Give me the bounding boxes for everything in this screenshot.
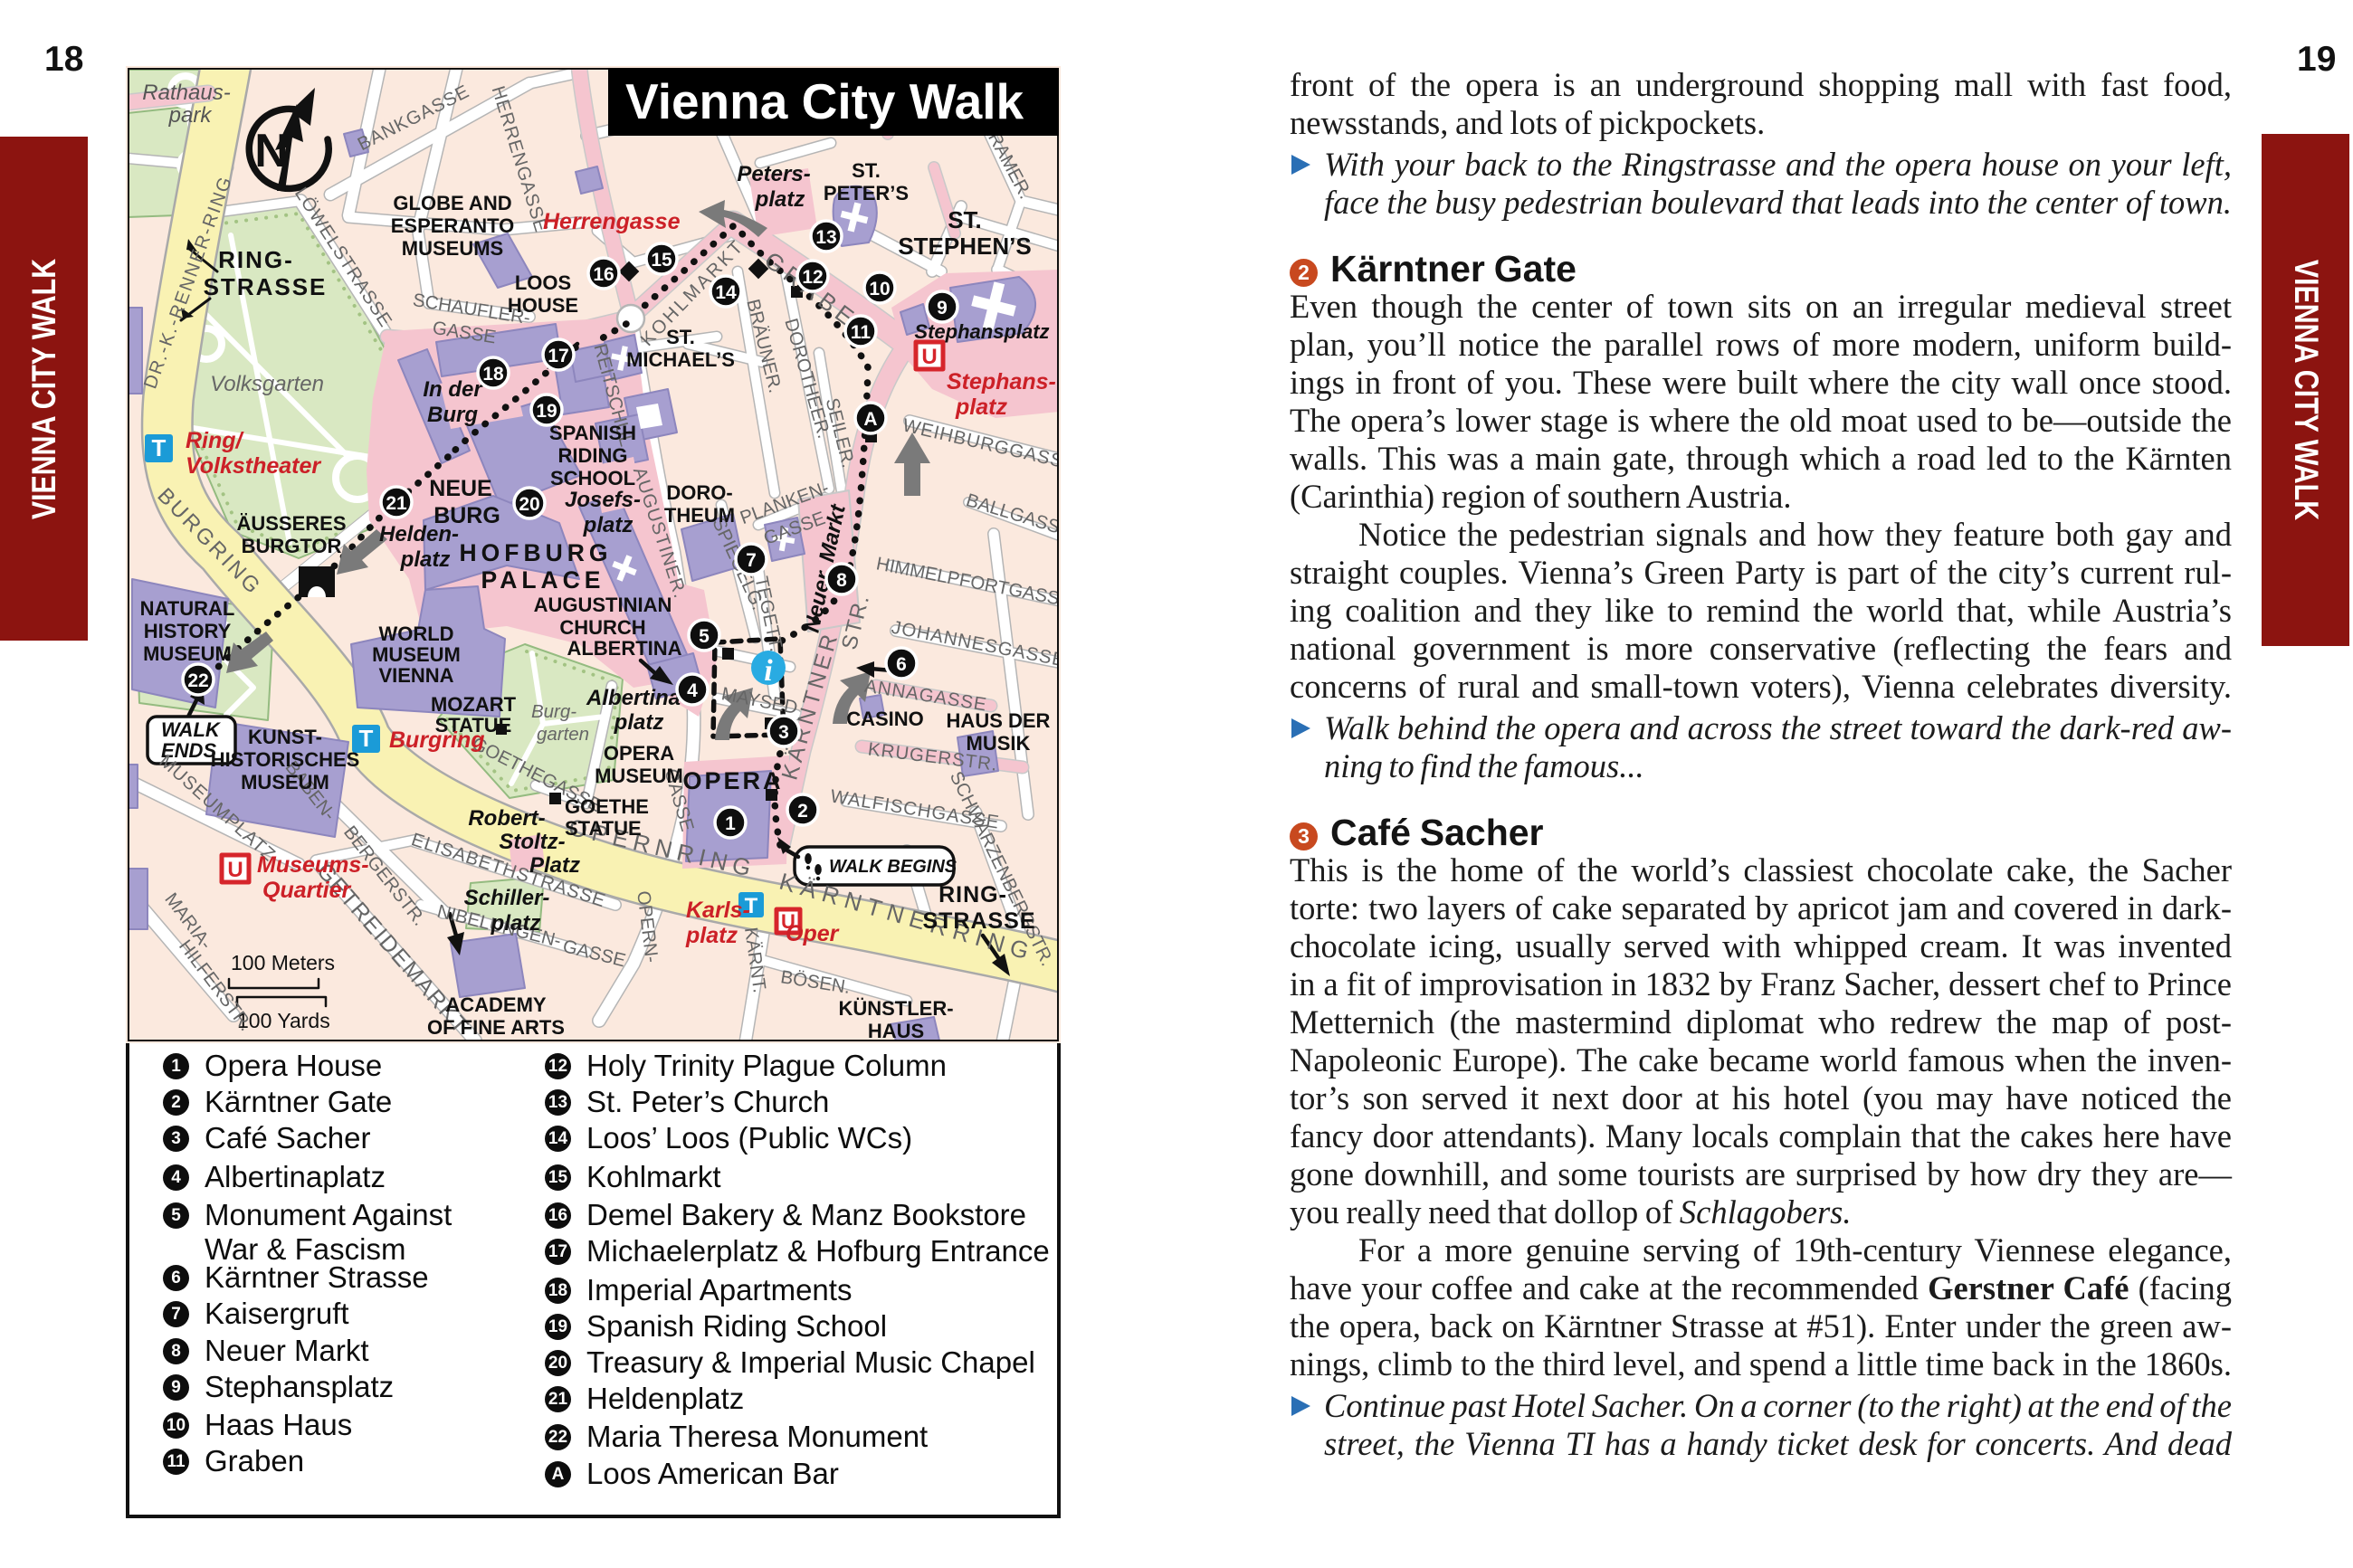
svg-text:STEPHEN’S: STEPHEN’S xyxy=(898,233,1031,260)
svg-text:platz: platz xyxy=(685,923,738,948)
svg-text:platz: platz xyxy=(755,187,805,212)
svg-text:Rathaus-: Rathaus- xyxy=(142,81,230,105)
svg-text:HAUS: HAUS xyxy=(868,1020,924,1042)
svg-text:A: A xyxy=(863,409,877,430)
svg-text:GOETHE: GOETHE xyxy=(565,795,649,818)
svg-text:Herrengasse: Herrengasse xyxy=(543,209,681,234)
svg-text:Schiller-: Schiller- xyxy=(464,886,550,910)
svg-text:MICHAEL’S: MICHAEL’S xyxy=(626,348,735,371)
svg-text:T: T xyxy=(359,725,374,752)
svg-text:12: 12 xyxy=(802,267,823,288)
svg-text:HOUSE: HOUSE xyxy=(508,294,578,317)
svg-text:CHURCH: CHURCH xyxy=(559,616,645,639)
svg-text:Ring/: Ring/ xyxy=(186,428,245,453)
svg-text:MUSEUMS: MUSEUMS xyxy=(402,237,503,260)
svg-text:Volkstheater: Volkstheater xyxy=(186,453,321,479)
svg-text:9: 9 xyxy=(937,298,948,318)
svg-text:7: 7 xyxy=(746,550,757,571)
svg-text:21: 21 xyxy=(386,493,407,514)
svg-text:LOOS: LOOS xyxy=(515,271,571,294)
svg-text:OF FINE ARTS: OF FINE ARTS xyxy=(427,1016,565,1039)
svg-text:T: T xyxy=(152,434,167,461)
svg-text:AUGUSTINIAN: AUGUSTINIAN xyxy=(534,594,672,616)
svg-text:MOZART: MOZART xyxy=(431,693,517,716)
svg-text:OPERA: OPERA xyxy=(682,767,783,794)
svg-text:Peters-: Peters- xyxy=(737,162,810,186)
svg-text:platz: platz xyxy=(583,513,633,537)
svg-text:KÜNSTLER-: KÜNSTLER- xyxy=(838,997,953,1020)
svg-text:RIDING: RIDING xyxy=(558,444,628,467)
svg-text:ESPERANTO: ESPERANTO xyxy=(391,214,515,237)
svg-text:platz: platz xyxy=(955,394,1007,420)
svg-text:WALK BEGINS: WALK BEGINS xyxy=(829,857,957,877)
svg-text:ÄUSSERES: ÄUSSERES xyxy=(236,512,346,535)
svg-text:ALBERTINA: ALBERTINA xyxy=(567,637,681,660)
svg-text:MUSEUM: MUSEUM xyxy=(372,643,461,666)
svg-text:22: 22 xyxy=(187,670,208,691)
svg-text:ST.: ST. xyxy=(852,159,881,182)
svg-text:11: 11 xyxy=(851,322,872,343)
svg-text:PETER’S: PETER’S xyxy=(824,182,909,204)
svg-text:20: 20 xyxy=(519,494,539,515)
svg-text:RING-: RING- xyxy=(218,246,294,273)
svg-text:Stephansplatz: Stephansplatz xyxy=(914,320,1049,343)
svg-text:8: 8 xyxy=(836,570,847,591)
svg-text:CASINO: CASINO xyxy=(846,708,924,730)
svg-text:STATUE: STATUE xyxy=(565,817,642,840)
svg-text:Burgring: Burgring xyxy=(389,727,485,753)
svg-text:STRASSE: STRASSE xyxy=(204,273,328,300)
svg-text:1: 1 xyxy=(725,813,736,834)
svg-text:STRASSE: STRASSE xyxy=(922,908,1035,934)
svg-text:WORLD: WORLD xyxy=(378,622,453,645)
svg-text:2: 2 xyxy=(797,801,808,822)
svg-text:4: 4 xyxy=(687,680,698,701)
svg-text:PALACE: PALACE xyxy=(481,566,605,594)
svg-text:Helden-: Helden- xyxy=(379,522,459,546)
svg-text:DORO-: DORO- xyxy=(666,481,732,504)
svg-text:MUSEUM: MUSEUM xyxy=(143,642,232,665)
svg-text:Stephans-: Stephans- xyxy=(947,369,1056,394)
svg-text:platz: platz xyxy=(400,547,451,572)
svg-text:MUSEUM: MUSEUM xyxy=(241,771,329,794)
svg-text:14: 14 xyxy=(715,282,737,303)
svg-text:10: 10 xyxy=(869,279,890,299)
svg-text:Quartier: Quartier xyxy=(262,878,352,903)
svg-text:BURGTOR: BURGTOR xyxy=(242,535,342,557)
svg-text:Oper: Oper xyxy=(786,921,840,946)
svg-text:15: 15 xyxy=(651,250,672,271)
svg-text:WALK: WALK xyxy=(161,718,222,741)
svg-text:NEUE: NEUE xyxy=(429,476,491,501)
svg-text:Volksgarten: Volksgarten xyxy=(210,372,324,396)
svg-text:In der: In der xyxy=(423,377,483,402)
svg-text:13: 13 xyxy=(815,227,836,248)
svg-text:3: 3 xyxy=(778,722,789,743)
svg-text:18: 18 xyxy=(482,364,504,385)
svg-text:THEUM: THEUM xyxy=(664,504,735,527)
svg-text:Albertina-: Albertina- xyxy=(586,686,688,710)
svg-text:MUSIK: MUSIK xyxy=(967,732,1031,755)
svg-text:Vienna City Walk: Vienna City Walk xyxy=(625,73,1024,129)
svg-text:OPERA: OPERA xyxy=(604,742,674,765)
svg-text:17: 17 xyxy=(548,346,568,366)
svg-text:Burg: Burg xyxy=(427,403,478,427)
svg-text:SCHOOL: SCHOOL xyxy=(550,467,635,489)
svg-text:ST.: ST. xyxy=(666,326,695,348)
svg-text:Karls-: Karls- xyxy=(686,898,750,923)
svg-text:HOFBURG: HOFBURG xyxy=(460,539,613,566)
svg-text:i: i xyxy=(764,654,773,688)
svg-text:Platz: Platz xyxy=(529,853,580,878)
svg-text:HISTORY: HISTORY xyxy=(144,620,232,642)
svg-text:platz: platz xyxy=(491,911,541,936)
svg-text:ST.: ST. xyxy=(948,206,982,233)
svg-text:ACADEMY: ACADEMY xyxy=(445,993,547,1016)
svg-text:HAUS DER: HAUS DER xyxy=(947,709,1051,732)
svg-text:SPANISH: SPANISH xyxy=(549,422,636,444)
svg-text:garten: garten xyxy=(537,724,589,745)
svg-text:Museums-: Museums- xyxy=(257,852,369,878)
svg-text:Stoltz-: Stoltz- xyxy=(499,830,565,854)
svg-text:GLOBE AND: GLOBE AND xyxy=(393,192,511,214)
svg-text:NATURAL: NATURAL xyxy=(140,597,235,620)
svg-text:U: U xyxy=(921,345,937,369)
svg-text:VIENNA: VIENNA xyxy=(378,664,453,687)
svg-text:Robert-: Robert- xyxy=(468,806,545,831)
svg-text:platz: platz xyxy=(614,710,664,735)
svg-text:park: park xyxy=(168,103,214,128)
svg-text:U: U xyxy=(227,858,243,882)
svg-text:KUNST-: KUNST- xyxy=(248,726,322,748)
svg-text:5: 5 xyxy=(699,626,710,647)
svg-text:16: 16 xyxy=(593,264,614,285)
svg-text:100 Meters: 100 Meters xyxy=(231,951,335,974)
svg-text:Josefs-: Josefs- xyxy=(565,488,641,512)
svg-text:19: 19 xyxy=(536,401,557,422)
svg-text:MUSEUM: MUSEUM xyxy=(595,765,683,787)
svg-text:RING-: RING- xyxy=(938,882,1007,908)
svg-text:6: 6 xyxy=(896,654,907,675)
svg-text:Burg-: Burg- xyxy=(531,701,576,722)
svg-text:HISTORISCHES: HISTORISCHES xyxy=(211,748,360,771)
